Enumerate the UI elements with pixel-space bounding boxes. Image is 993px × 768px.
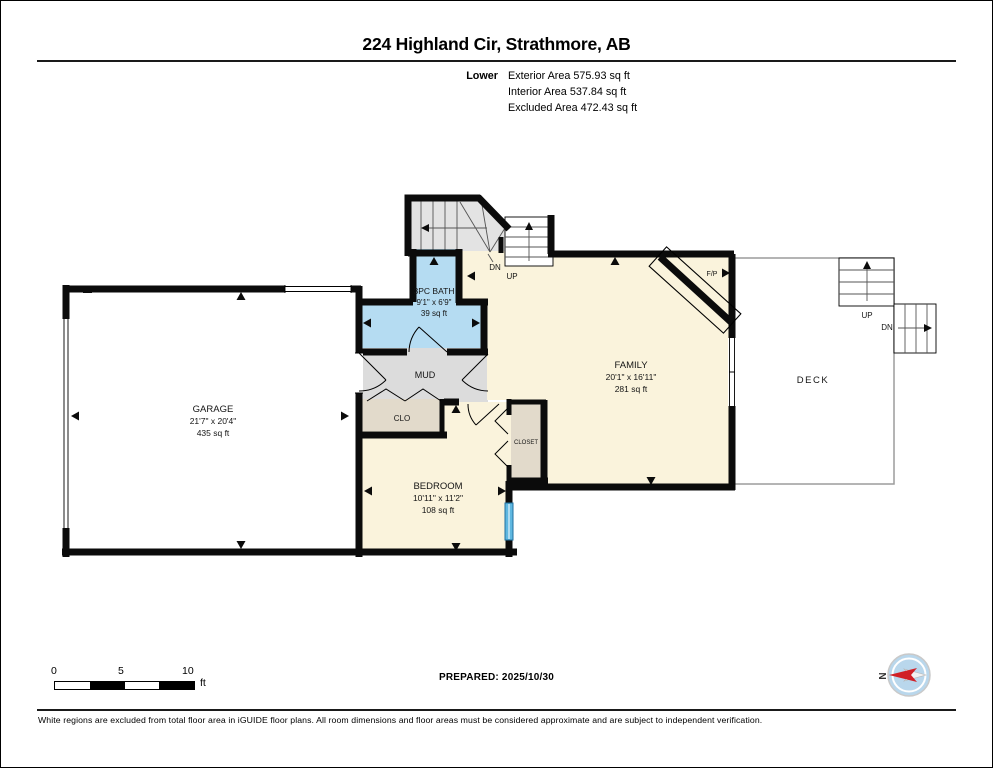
bedroom-area: 108 sq ft <box>422 505 455 515</box>
closet-label: CLOSET <box>514 440 538 446</box>
bedroom-dims: 10'11" x 11'2" <box>413 493 463 503</box>
compass: N <box>873 651 937 699</box>
footer-divider <box>37 709 956 711</box>
deck-label: DECK <box>797 375 829 386</box>
prepared-date: PREPARED: 2025/10/30 <box>1 672 992 683</box>
bedroom-window <box>505 503 513 540</box>
fireplace-label: F/P <box>707 271 718 278</box>
family-label: FAMILY <box>614 360 648 371</box>
dn-label-interior: DN <box>489 263 501 272</box>
bath-dims: 9'1" x 6'9" <box>417 298 452 307</box>
compass-north-label: N <box>878 672 889 679</box>
disclaimer-text: White regions are excluded from total fl… <box>38 715 762 725</box>
mud-label: MUD <box>415 370 436 380</box>
interior-stairs-up <box>505 217 553 266</box>
floorplan-drawing: GARAGE 21'7" x 20'4" 435 sq ft 3PC BATH … <box>1 1 993 768</box>
up-label-deck: UP <box>861 311 872 320</box>
bedroom-label: BEDROOM <box>413 481 462 492</box>
bath-label: 3PC BATH <box>414 286 455 296</box>
family-dims: 20'1" x 16'11" <box>606 372 657 382</box>
family-area: 281 sq ft <box>615 384 648 394</box>
garage-door <box>62 319 70 528</box>
garage-label: GARAGE <box>193 404 234 415</box>
clo-label: CLO <box>394 414 410 423</box>
floorplan-page: 224 Highland Cir, Strathmore, AB Lower E… <box>0 0 993 768</box>
garage-top-window <box>285 285 351 293</box>
up-label-interior: UP <box>506 272 517 281</box>
garage-dims: 21'7" x 20'4" <box>190 416 237 426</box>
garage-area: 435 sq ft <box>197 428 230 438</box>
dn-label-deck: DN <box>881 323 893 332</box>
bath-area: 39 sq ft <box>421 309 448 318</box>
deck-stairs-down <box>894 304 936 353</box>
family-window <box>728 338 737 406</box>
deck-stairs-up <box>839 258 894 306</box>
